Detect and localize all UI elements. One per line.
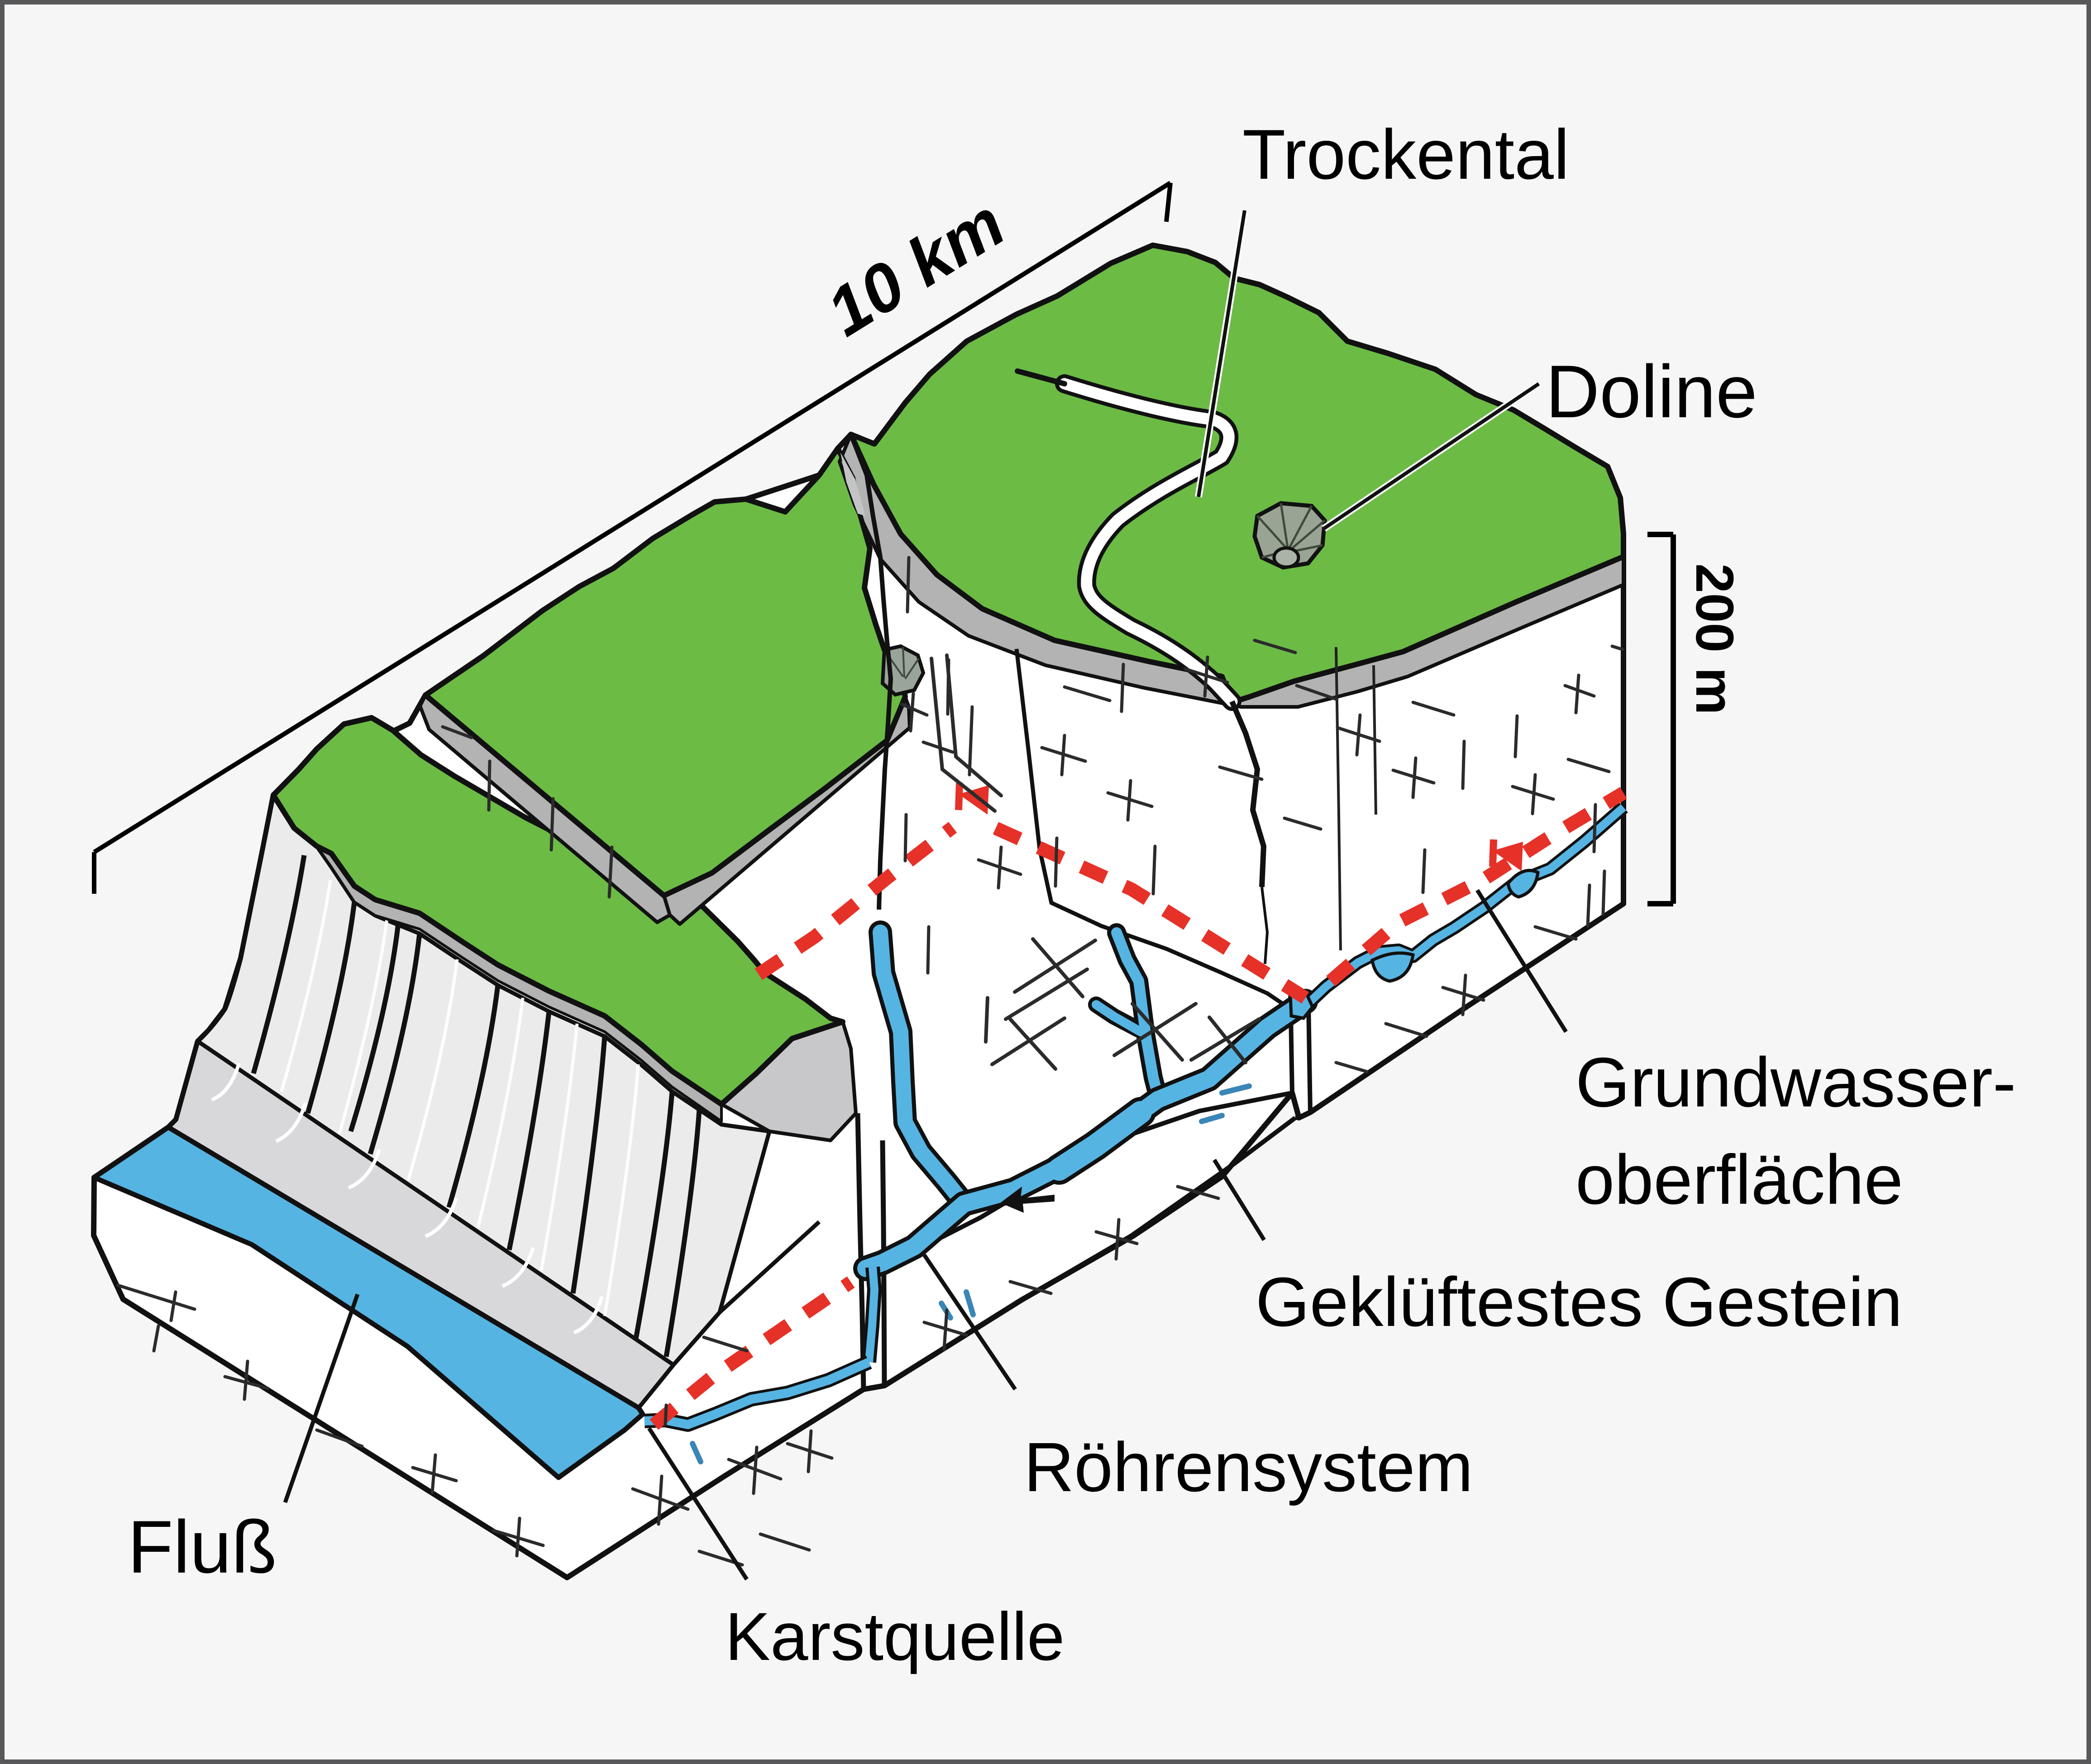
svg-text:200 m: 200 m bbox=[1685, 563, 1744, 715]
svg-text:Fluß: Fluß bbox=[128, 1505, 277, 1588]
svg-text:Doline: Doline bbox=[1546, 350, 1757, 433]
svg-text:Grundwasser-: Grundwasser- bbox=[1575, 1043, 2016, 1121]
svg-text:Trockental: Trockental bbox=[1242, 115, 1570, 194]
svg-text:Karstquelle: Karstquelle bbox=[725, 1598, 1065, 1674]
svg-text:Geklüftestes Gestein: Geklüftestes Gestein bbox=[1256, 1263, 1902, 1341]
svg-text:Röhrensystem: Röhrensystem bbox=[1024, 1428, 1473, 1506]
svg-text:oberfläche: oberfläche bbox=[1575, 1140, 1903, 1219]
